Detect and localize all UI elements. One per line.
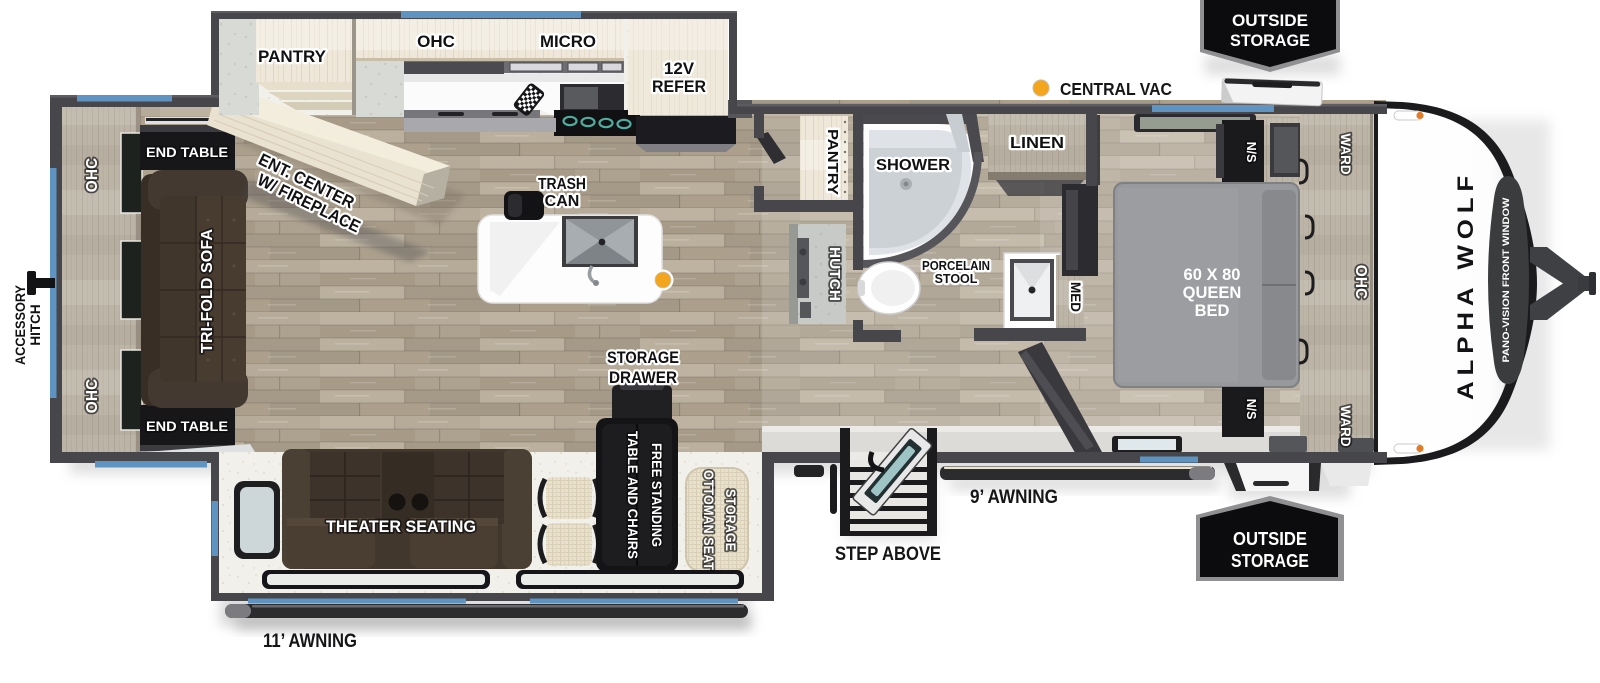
svg-text:STORAGE: STORAGE [1230, 31, 1310, 50]
svg-text:OUTSIDE: OUTSIDE [1233, 528, 1307, 549]
svg-text:STORAGE: STORAGE [723, 489, 738, 551]
svg-text:N/S: N/S [1244, 142, 1258, 163]
svg-text:LINEN: LINEN [1010, 135, 1064, 152]
svg-text:PANO-VISION FRONT WINDOW: PANO-VISION FRONT WINDOW [1501, 197, 1511, 363]
svg-text:REFER: REFER [652, 77, 706, 96]
svg-text:9’ AWNING: 9’ AWNING [970, 487, 1058, 508]
svg-text:QUEEN: QUEEN [1183, 284, 1242, 302]
svg-text:STOOL: STOOL [935, 272, 978, 286]
svg-text:11’ AWNING: 11’ AWNING [263, 631, 357, 652]
svg-text:OUTSIDE: OUTSIDE [1232, 11, 1308, 30]
svg-text:PANTRY: PANTRY [824, 129, 840, 195]
svg-text:STORAGE: STORAGE [1231, 550, 1309, 571]
svg-text:STORAGE: STORAGE [607, 348, 679, 367]
svg-text:OTTOMAN SEAT: OTTOMAN SEAT [701, 470, 716, 571]
svg-text:PANTRY: PANTRY [258, 47, 327, 66]
svg-text:BED: BED [1195, 302, 1230, 320]
svg-text:OHC: OHC [417, 32, 455, 51]
svg-text:END TABLE: END TABLE [146, 145, 228, 160]
svg-text:FREE STANDING: FREE STANDING [649, 443, 664, 547]
svg-text:TRASH: TRASH [538, 176, 586, 193]
svg-text:TRI-FOLD SOFA: TRI-FOLD SOFA [199, 229, 216, 353]
svg-text:HUTCH: HUTCH [826, 247, 842, 301]
svg-text:DRAWER: DRAWER [609, 368, 677, 387]
svg-text:WARD: WARD [1338, 133, 1353, 174]
svg-text:OHC: OHC [1352, 265, 1369, 299]
svg-text:WARD: WARD [1338, 405, 1353, 446]
svg-text:N/S: N/S [1244, 399, 1258, 420]
svg-text:60 X 80: 60 X 80 [1184, 266, 1241, 284]
svg-text:TABLE AND CHAIRS: TABLE AND CHAIRS [625, 431, 640, 559]
svg-text:HITCH: HITCH [28, 304, 43, 345]
svg-text:CENTRAL VAC: CENTRAL VAC [1060, 79, 1172, 99]
svg-text:12V: 12V [664, 59, 695, 78]
svg-text:ALPHA WOLF: ALPHA WOLF [1453, 170, 1478, 400]
svg-text:THEATER SEATING: THEATER SEATING [326, 518, 476, 536]
svg-text:STEP ABOVE: STEP ABOVE [835, 544, 941, 565]
svg-text:CAN: CAN [545, 193, 580, 210]
svg-text:PORCELAIN: PORCELAIN [922, 259, 990, 273]
svg-text:OHC: OHC [84, 158, 101, 192]
svg-text:SHOWER: SHOWER [876, 157, 950, 174]
svg-text:END TABLE: END TABLE [146, 419, 228, 434]
svg-text:MED: MED [1068, 282, 1083, 312]
svg-text:MICRO: MICRO [540, 32, 596, 51]
svg-text:ACCESSORY: ACCESSORY [13, 285, 28, 365]
svg-text:OHC: OHC [84, 379, 101, 413]
